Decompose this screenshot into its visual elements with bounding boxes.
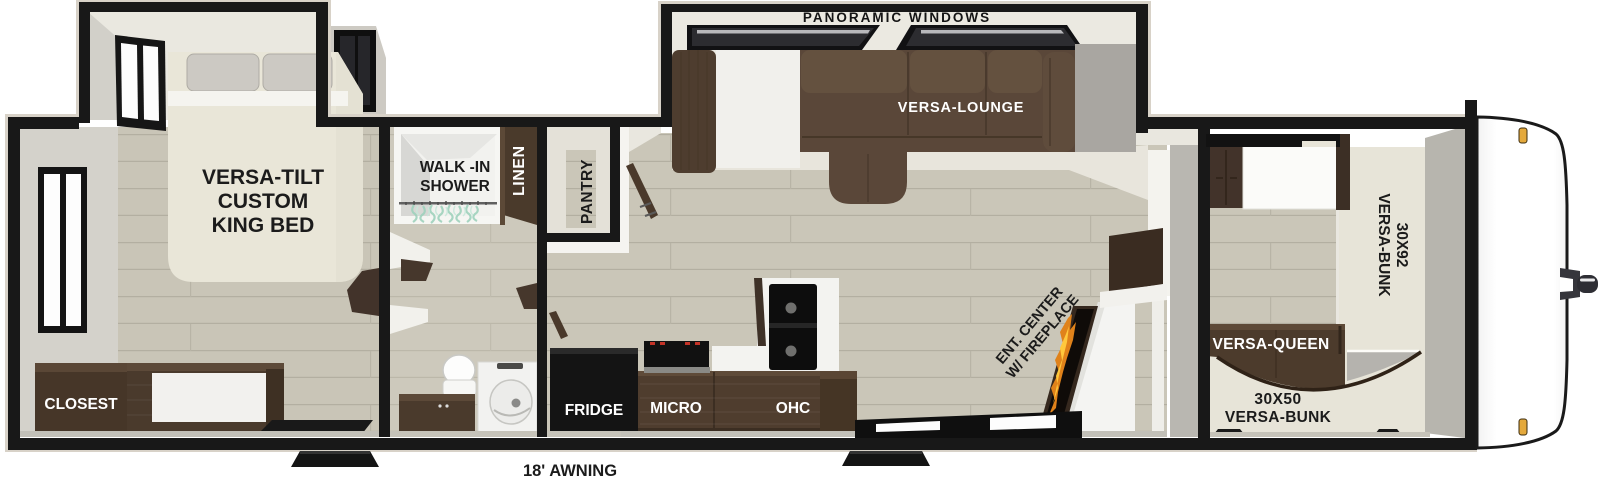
- svg-text:OHC: OHC: [776, 400, 810, 417]
- svg-text:WALK -IN: WALK -IN: [420, 159, 491, 176]
- svg-text:CLOSEST: CLOSEST: [44, 396, 118, 413]
- svg-text:30X92: 30X92: [1393, 223, 1410, 268]
- svg-text:VERSA-LOUNGE: VERSA-LOUNGE: [898, 100, 1024, 116]
- svg-text:VERSA-QUEEN: VERSA-QUEEN: [1213, 336, 1330, 353]
- svg-text:FRIDGE: FRIDGE: [565, 402, 624, 419]
- svg-text:PANTRY: PANTRY: [579, 159, 596, 224]
- svg-text:CUSTOM: CUSTOM: [218, 190, 309, 213]
- svg-text:30X50: 30X50: [1254, 391, 1301, 408]
- svg-text:PANORAMIC WINDOWS: PANORAMIC WINDOWS: [803, 10, 991, 25]
- svg-text:SHOWER: SHOWER: [420, 178, 490, 195]
- svg-text:LINEN: LINEN: [511, 146, 528, 197]
- svg-text:KING BED: KING BED: [212, 214, 315, 237]
- svg-text:MICRO: MICRO: [650, 400, 702, 417]
- svg-text:VERSA-TILT: VERSA-TILT: [202, 166, 324, 189]
- svg-text:VERSA-BUNK: VERSA-BUNK: [1225, 409, 1332, 426]
- svg-text:18' AWNING: 18' AWNING: [523, 462, 617, 477]
- svg-text:VERSA-BUNK: VERSA-BUNK: [1375, 193, 1392, 297]
